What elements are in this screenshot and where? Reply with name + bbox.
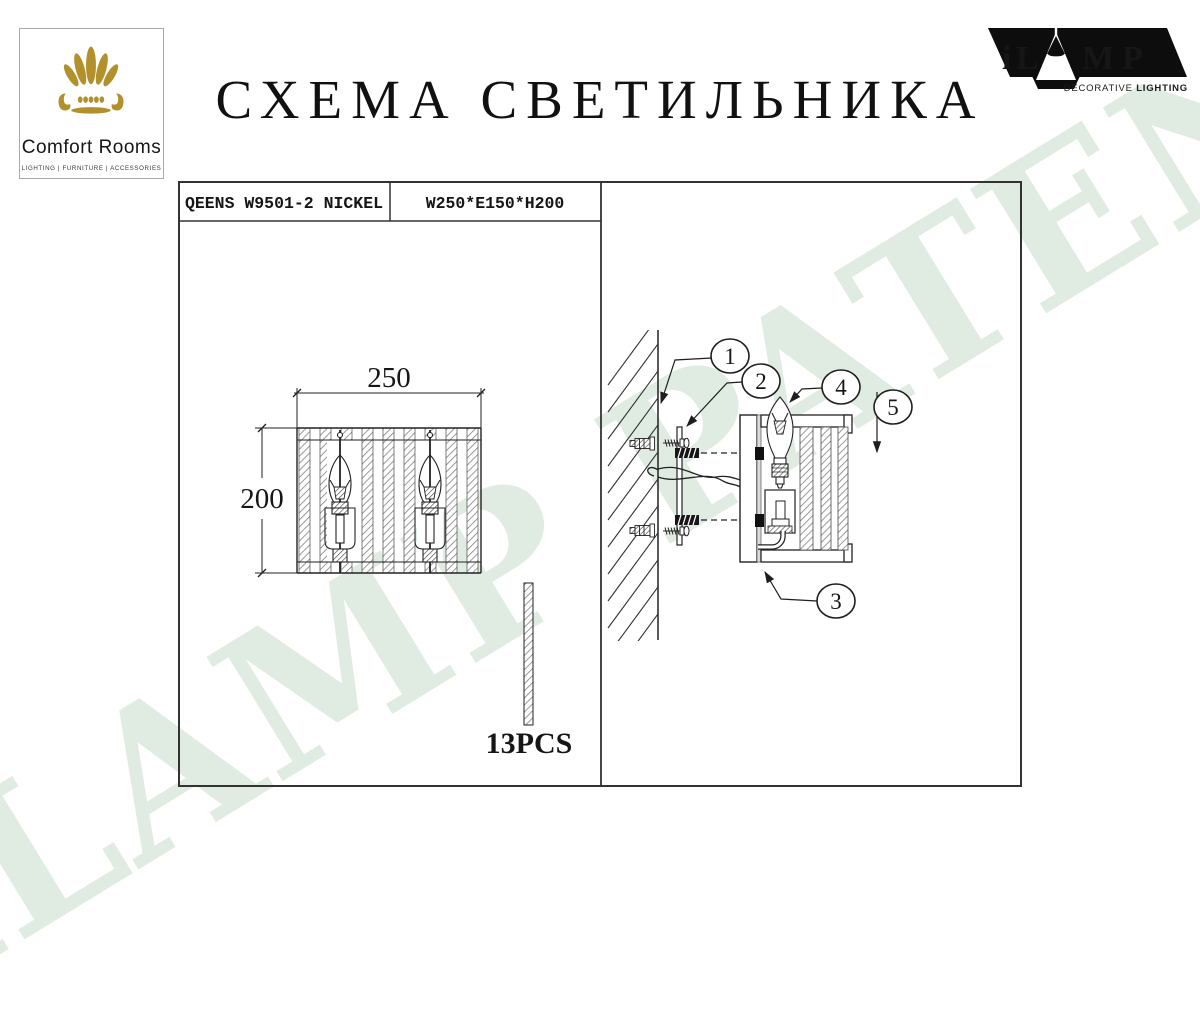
candle-bulb-side	[767, 397, 793, 488]
wall-anchor-top	[630, 437, 655, 450]
crystal-strip	[524, 583, 533, 725]
lamp-side-view	[740, 397, 852, 562]
callout-1-number: 1	[724, 344, 736, 369]
size-cell: W250*E150*H200	[426, 194, 565, 213]
wood-screw-bottom	[663, 526, 689, 536]
width-dimension	[293, 388, 485, 428]
wall-anchor-bottom	[630, 524, 655, 537]
socket-holder	[765, 490, 795, 533]
keyhole-slot-bottom	[755, 514, 764, 527]
ilamp-tagline-bold: LIGHTING	[1136, 83, 1188, 94]
shade-stripes	[299, 428, 478, 573]
backplate	[740, 415, 757, 562]
wood-screw-top	[663, 438, 689, 448]
ilamp-letter-m: M	[1082, 40, 1114, 77]
callout-4-number: 4	[835, 375, 847, 400]
model-cell: QEENS W9501-2 NICKEL	[185, 194, 383, 213]
wires	[648, 467, 740, 487]
callout-2: 2	[742, 364, 780, 398]
callout-4: 4	[822, 370, 860, 404]
stud-bottom	[675, 515, 699, 525]
ilamp-letter-l: L	[1016, 40, 1039, 77]
height-dimension-label: 200	[240, 483, 284, 515]
wall	[608, 317, 658, 682]
callout-1: 1	[711, 339, 749, 373]
ilamp-tagline-regular: DECORATIVE	[1064, 83, 1137, 94]
stud-top	[675, 448, 699, 458]
callout-5-number: 5	[887, 395, 899, 420]
ilamp-letter-p: P	[1122, 40, 1143, 77]
comfort-rooms-name: Comfort Rooms	[20, 137, 163, 159]
callout-3-number: 3	[830, 589, 842, 614]
pieces-count-label: 13PCS	[486, 727, 573, 760]
lamp-scheme-diagram: 250 200 13PCS	[178, 181, 1022, 787]
keyhole-slot-top	[755, 447, 764, 460]
front-view: 250 200 13PCS	[240, 362, 572, 760]
callout-3: 3	[817, 584, 855, 618]
mounting-view: 1 2 3 4 5	[608, 317, 912, 682]
comfort-rooms-tagline: LIGHTING | FURNITURE | ACCESSORIES	[20, 165, 163, 172]
shade-bottom-rail	[761, 550, 849, 562]
callout-2-number: 2	[755, 369, 767, 394]
ilamp-letter-i: i	[1002, 40, 1011, 77]
width-dimension-label: 250	[367, 362, 411, 394]
ilamp-tagline: DECORATIVE LIGHTING	[1038, 83, 1188, 94]
callout-5: 5	[874, 390, 912, 424]
shade-stripes-side	[800, 427, 848, 550]
